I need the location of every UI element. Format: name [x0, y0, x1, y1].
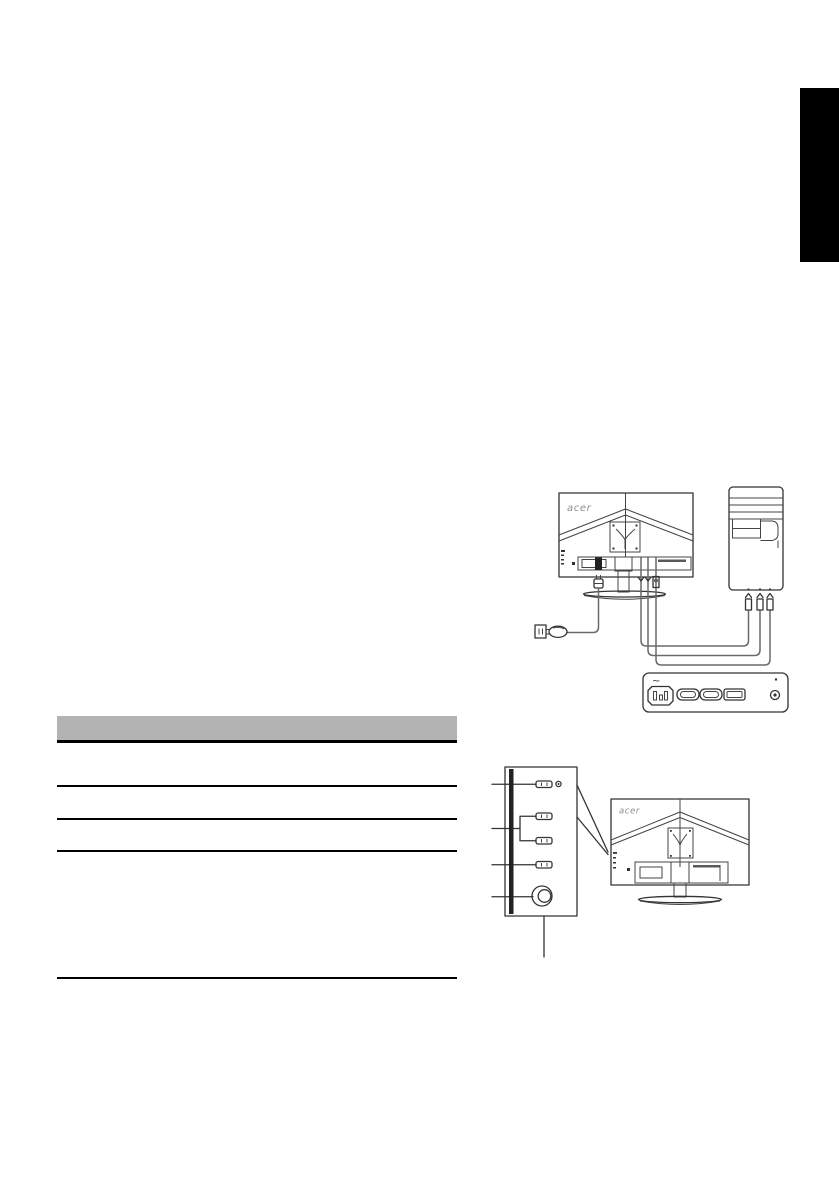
io-recess	[578, 557, 691, 570]
cable-plug-arrows	[746, 589, 774, 611]
callout-lines	[492, 784, 536, 897]
button-2	[536, 813, 552, 820]
acer-logo: acer	[619, 807, 640, 817]
table-row	[57, 743, 457, 787]
controls-panel	[505, 767, 608, 957]
wall-plug-icon	[535, 625, 567, 638]
monitor-rear-bottom: acer	[611, 799, 749, 905]
power-cord	[535, 575, 603, 638]
connection-diagram: acer	[520, 478, 820, 723]
io-ports-panel: ~	[643, 673, 788, 712]
displayport-icon	[724, 689, 745, 700]
language-tab	[800, 88, 839, 262]
audio-jack-icon	[771, 678, 780, 699]
table-row	[57, 852, 457, 979]
io-recess	[635, 862, 728, 883]
button-3	[536, 838, 552, 845]
side-buttons-icon	[613, 852, 630, 871]
controls-diagram: acer	[478, 755, 768, 965]
ac-inlet-icon	[648, 687, 673, 706]
spec-table-header	[57, 716, 457, 743]
hdmi-port-1-icon	[677, 689, 699, 700]
pc-tower	[729, 487, 783, 590]
spec-table	[57, 716, 457, 979]
plugged-power-connector	[595, 558, 602, 571]
navi-joystick	[532, 886, 552, 906]
ac-symbol: ~	[652, 676, 660, 687]
acer-logo: acer	[567, 503, 592, 514]
signal-cables	[638, 558, 773, 665]
monitor-rear-top: acer	[559, 493, 693, 599]
pointer-wedge	[577, 785, 608, 855]
button-1	[536, 781, 552, 788]
table-row	[57, 820, 457, 852]
manual-page: acer	[0, 0, 839, 1190]
button-4	[536, 862, 552, 869]
hdmi-port-2-icon	[700, 689, 722, 700]
table-row	[57, 787, 457, 820]
side-buttons-icon	[561, 550, 575, 565]
